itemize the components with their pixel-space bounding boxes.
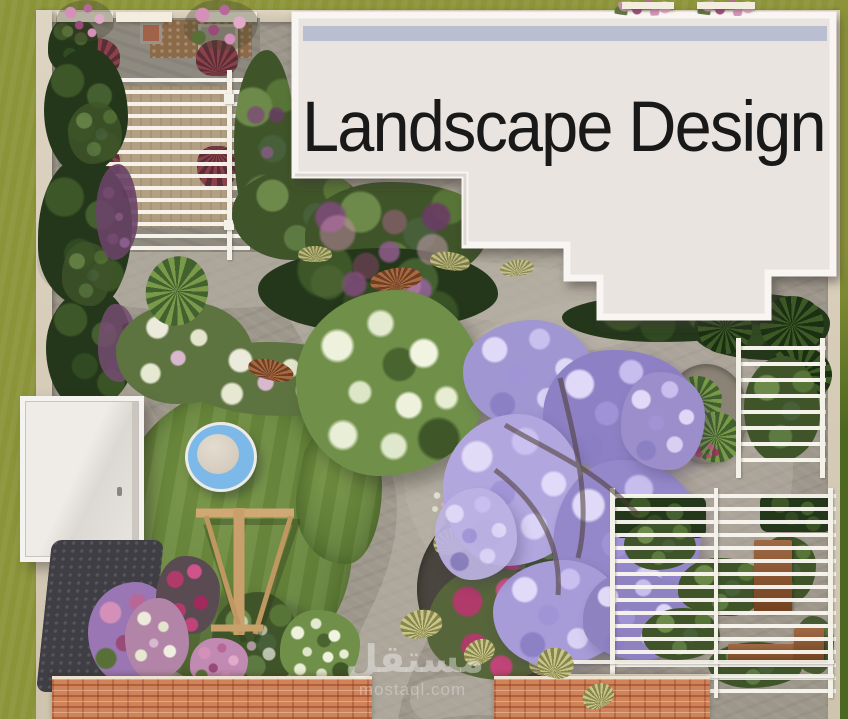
watermark-arabic: مستقل: [345, 640, 480, 678]
wood-structures: [0, 0, 848, 719]
watermark: مستقل mostaql.com: [345, 640, 480, 698]
watermark-domain: mostaql.com: [345, 681, 480, 698]
landscape-design-render: Landscape Design: [0, 0, 848, 719]
